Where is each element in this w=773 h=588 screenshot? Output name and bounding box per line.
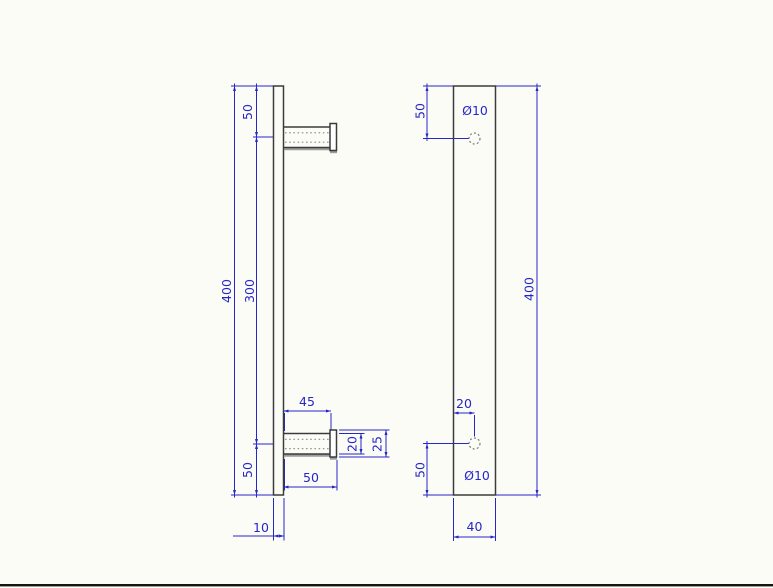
top-hole <box>469 133 480 144</box>
arrowhead <box>426 86 429 91</box>
dim-label-bar-thickness: 10 <box>253 520 269 535</box>
arrowhead <box>233 86 236 91</box>
arrowhead <box>470 412 475 415</box>
arrowhead <box>255 444 258 449</box>
dim-label-holes-spacing: 300 <box>242 279 257 303</box>
dim-label-post-diameter: 20 <box>345 436 360 452</box>
arrowhead <box>426 134 429 139</box>
arrowhead <box>360 434 363 439</box>
bottom-post <box>284 430 337 459</box>
bottom-post-cap <box>330 430 337 457</box>
dim-label-cap-diameter: 25 <box>370 436 385 452</box>
dim-label-bottom-offset: 50 <box>413 462 428 478</box>
front-view: 50 50 400 20 40 Ø10 Ø10 <box>413 84 542 542</box>
arrowhead <box>426 444 429 449</box>
dim-label-hole-diameter-bottom: Ø10 <box>464 468 490 483</box>
arrowhead <box>274 535 279 538</box>
arrowhead <box>255 439 258 444</box>
arrowhead <box>326 410 331 413</box>
arrowhead <box>536 86 539 91</box>
arrowhead <box>279 535 284 538</box>
window-bottom-border <box>0 584 773 586</box>
dim-label-overall-length: 400 <box>219 279 234 303</box>
dim-label-post-overall: 50 <box>303 470 319 485</box>
dim-label-bottom-offset: 50 <box>240 462 255 478</box>
arrowhead <box>255 132 258 137</box>
arrowhead <box>454 536 459 539</box>
arrowhead <box>426 490 429 495</box>
arrowhead <box>385 430 388 435</box>
drawing-canvas: 400 300 50 50 45 50 20 25 10 <box>0 0 773 588</box>
arrowhead <box>385 452 388 457</box>
dim-label-top-offset: 50 <box>413 103 428 119</box>
dim-label-post-to-cap: 45 <box>299 394 315 409</box>
dim-label-hole-diameter-top: Ø10 <box>462 103 488 118</box>
arrowhead <box>332 486 337 489</box>
dim-label-overall-length: 400 <box>522 277 537 301</box>
arrowhead <box>491 536 496 539</box>
dim-label-bar-width: 40 <box>467 519 483 534</box>
bar-side-outline <box>274 86 284 495</box>
arrowhead <box>536 490 539 495</box>
arrowhead <box>255 490 258 495</box>
arrowhead <box>255 137 258 142</box>
dim-label-top-offset: 50 <box>240 104 255 120</box>
arrowhead <box>360 449 363 454</box>
arrowhead <box>255 86 258 91</box>
top-post-cap <box>330 124 337 151</box>
side-view: 400 300 50 50 45 50 20 25 10 <box>219 84 390 541</box>
bottom-hole <box>469 438 480 449</box>
dim-label-hole-inset: 20 <box>456 396 472 411</box>
top-post <box>284 124 337 153</box>
arrowhead <box>233 490 236 495</box>
